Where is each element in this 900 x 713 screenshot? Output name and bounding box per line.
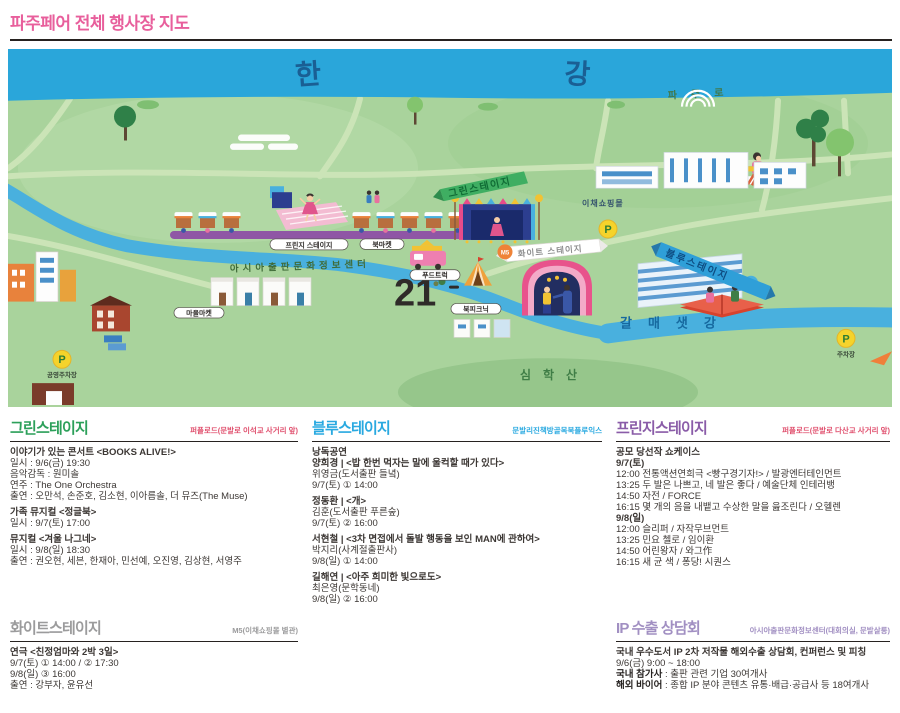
event-line: 9/8(일) ② 16:00 — [312, 594, 602, 605]
event-line: 9/8(일) ① 14:00 — [312, 556, 602, 567]
map-illustration: 한 강 파주로 갈매샛강 심학산 — [8, 49, 892, 407]
food-truck-pill: 푸드트럭 — [410, 270, 460, 280]
page-header: 파주페어 전체 행사장 지도 — [0, 0, 900, 41]
detail-value: : 출판 관련 기업 30여개사 — [662, 669, 767, 680]
event-title: 연극 <친정엄마와 2박 3일> — [10, 647, 298, 658]
svg-text:푸드트럭: 푸드트럭 — [422, 271, 448, 280]
event: 연극 <친정엄마와 2박 3일> 9/7(토) ① 14:00 / ② 17:3… — [10, 647, 298, 691]
section-white-stage: 화이트스테이지 M5(이채쇼핑몰 별관) 연극 <친정엄마와 2박 3일> 9/… — [10, 617, 298, 691]
han-river — [8, 49, 892, 101]
event-title: 가족 뮤지컬 <정글북> — [10, 507, 298, 518]
section-header: 프린지스테이지 퍼플로드(문발로 다산교 사거리 앞) — [616, 417, 890, 442]
event-line: 9/8(일) ③ 16:00 — [10, 669, 298, 680]
section-location: M5(이채쇼핑몰 별관) — [232, 625, 298, 638]
event-line: 국내 우수도서 IP 2차 저작물 해외수출 상담회, 컨퍼런스 및 피칭 — [616, 647, 890, 658]
corner-building — [32, 383, 74, 405]
schedule-item: 16:15 새 균 색 / 퐁당! 시퀀스 — [616, 557, 890, 568]
event-line: 9/6(금) 9:00 ~ 18:00 — [616, 658, 890, 669]
section-location: 문발리진책방골목북플루익스 — [512, 425, 602, 438]
event-line: 국내 참가사 : 출판 관련 기업 30여개사 — [616, 669, 890, 680]
svg-text:M5: M5 — [501, 250, 510, 256]
village-market-pill: 마을마켓 — [174, 308, 224, 318]
book-picnic-pill: 북피크닉 — [451, 304, 501, 314]
section-location: 퍼플로드(문발로 다산교 사거리 앞) — [782, 425, 890, 438]
svg-text:마을마켓: 마을마켓 — [186, 309, 212, 318]
svg-text:P: P — [58, 354, 65, 366]
parking-icon-left: P — [53, 350, 71, 368]
page-title: 파주페어 전체 행사장 지도 — [10, 9, 892, 34]
poster-page: 파주페어 전체 행사장 지도 한 강 파주 — [0, 0, 900, 713]
parking-label-right: 주차장 — [837, 349, 855, 358]
fringe-stage-pill: 프린지 스테이지 — [270, 239, 348, 250]
venue-map: 한 강 파주로 갈매샛강 심학산 — [8, 49, 892, 407]
theater-illustration — [522, 260, 592, 316]
event-line: 최은영(문학동네) — [312, 583, 602, 594]
event-line: 9/7(토) ② 16:00 — [312, 518, 602, 529]
section-location: 아시아출판문화정보센터(대회의실, 문발살롱) — [750, 625, 890, 638]
event-title: 이야기가 있는 콘서트 <BOOKS ALIVE!> — [10, 447, 298, 458]
svg-text:P: P — [842, 333, 849, 345]
section-ip-export: IP 수출 상담회 아시아출판문화정보센터(대회의실, 문발살롱) 국내 우수도… — [616, 617, 890, 691]
section-header: 화이트스테이지 M5(이채쇼핑몰 별관) — [10, 617, 298, 642]
parking-icon-right: P — [837, 329, 855, 347]
parking-icon-center: P — [599, 220, 617, 238]
event: 정동환 | <개> 김훈(도서출판 푸른숲) 9/7(토) ② 16:00 — [312, 496, 602, 529]
svg-text:북마켓: 북마켓 — [372, 240, 392, 249]
event-line: 해외 바이어 : 종합 IP 분야 콘텐츠 유통·배급·공급사 등 18여개사 — [616, 680, 890, 691]
event: 뮤지컬 <겨울 나그네> 일시 : 9/8(일) 18:30 출연 : 권오현,… — [10, 534, 298, 567]
title-rule — [10, 39, 892, 41]
event: 낭독공연 양희경 | <밥 한번 먹자는 말에 울컥할 때가 있다> 위영금(도… — [312, 447, 602, 491]
section-title: 블루스테이지 — [312, 417, 390, 438]
event-line: 위영금(도서출판 들녘) — [312, 469, 602, 480]
schedule-item: 12:00 전통액션연희극 <빵구경기자!> / 발광엔터테인먼트 — [616, 469, 890, 480]
white-stage-badge: M5 — [498, 244, 513, 259]
event-line: 일시 : 9/6(금) 19:30 — [10, 458, 298, 469]
event-title: 정동환 | <개> — [312, 496, 602, 507]
day-label: 9/7(토) — [616, 458, 890, 469]
day-label: 9/8(일) — [616, 513, 890, 524]
event-line: 김훈(도서출판 푸른숲) — [312, 507, 602, 518]
section-title: 프린지스테이지 — [616, 417, 707, 438]
schedule-item: 16:15 몇 개의 음을 내뱉고 수상한 말을 읊조린다 / 오헬렌 — [616, 502, 890, 513]
detail-label: 국내 참가사 — [616, 669, 662, 680]
empty-cell — [312, 617, 602, 691]
event-line: 9/7(토) ① 14:00 — [312, 480, 602, 491]
event: 국내 우수도서 IP 2차 저작물 해외수출 상담회, 컨퍼런스 및 피칭 9/… — [616, 647, 890, 691]
event-line: 박지리(사계절출판사) — [312, 545, 602, 556]
section-header: 그린스테이지 퍼플로드(문발로 이석교 사거리 앞) — [10, 417, 298, 442]
mountain-label: 심학산 — [520, 367, 589, 382]
svg-text:북피크닉: 북피크닉 — [463, 305, 489, 314]
event-title: 양희경 | <밥 한번 먹자는 말에 울컥할 때가 있다> — [312, 458, 602, 469]
shopping-mall-label: 이채쇼핑몰 — [582, 198, 624, 208]
event-line: 일시 : 9/7(토) 17:00 — [10, 518, 298, 529]
svg-text:프린지 스테이지: 프린지 스테이지 — [286, 240, 333, 249]
han-river-label-2: 강 — [564, 58, 592, 90]
book-market-pill: 북마켓 — [360, 239, 404, 249]
svg-text:P: P — [604, 224, 611, 236]
small-buildings — [454, 319, 510, 337]
schedule-item: 13:25 두 발은 나쁘고, 네 발은 좋다 / 예술단체 인테러뱅 — [616, 480, 890, 491]
section-blue-stage: 블루스테이지 문발리진책방골목북플루익스 낭독공연 양희경 | <밥 한번 먹자… — [312, 417, 602, 605]
event: 이야기가 있는 콘서트 <BOOKS ALIVE!> 일시 : 9/6(금) 1… — [10, 447, 298, 502]
event-line: 출연 : 강부자, 윤유선 — [10, 680, 298, 691]
showcase-title: 공모 당선작 쇼케이스 — [616, 447, 890, 458]
event-title: 서현철 | <3차 면접에서 돌발 행동을 보인 MAN에 관하여> — [312, 534, 602, 545]
event-title: 길해연 | <아주 희미한 빛으로도> — [312, 572, 602, 583]
event: 가족 뮤지컬 <정글북> 일시 : 9/7(토) 17:00 — [10, 507, 298, 529]
han-river-label-1: 한 — [294, 58, 322, 91]
event-line: 9/7(토) ① 14:00 / ② 17:30 — [10, 658, 298, 669]
section-title: IP 수출 상담회 — [616, 617, 700, 638]
detail-value: : 종합 IP 분야 콘텐츠 유통·배급·공급사 등 18여개사 — [662, 680, 869, 691]
section-fringe-stage: 프린지스테이지 퍼플로드(문발로 다산교 사거리 앞) 공모 당선작 쇼케이스 … — [616, 417, 890, 605]
stream-label: 갈매샛강 — [620, 315, 732, 330]
purple-road — [170, 231, 473, 239]
event: 길해연 | <아주 희미한 빛으로도> 최은영(문학동네) 9/8(일) ② 1… — [312, 572, 602, 605]
section-title: 그린스테이지 — [10, 417, 88, 438]
event-category: 낭독공연 — [312, 447, 602, 458]
showcase: 공모 당선작 쇼케이스 9/7(토) 12:00 전통액션연희극 <빵구경기자!… — [616, 447, 890, 568]
section-green-stage: 그린스테이지 퍼플로드(문발로 이석교 사거리 앞) 이야기가 있는 콘서트 <… — [10, 417, 298, 605]
section-header: 블루스테이지 문발리진책방골목북플루익스 — [312, 417, 602, 442]
event-line: 연주 : The One Orchestra — [10, 480, 298, 491]
schedule-item: 14:50 자전 / FORCE — [616, 491, 890, 502]
schedule-item: 12:00 슬리퍼 / 자작무브먼트 — [616, 524, 890, 535]
event-line: 출연 : 오만석, 손준호, 김소현, 이아름솔, 더 뮤즈(The Muse) — [10, 491, 298, 502]
detail-label: 해외 바이어 — [616, 680, 662, 691]
section-header: IP 수출 상담회 아시아출판문화정보센터(대회의실, 문발살롱) — [616, 617, 890, 642]
event-line: 음악감독 : 원미솔 — [10, 469, 298, 480]
event-line: 출연 : 권오현, 세븐, 한재아, 민선예, 오진영, 김상현, 서영주 — [10, 556, 298, 567]
event-line: 일시 : 9/8(일) 18:30 — [10, 545, 298, 556]
parking-label-left: 공영주차장 — [47, 370, 77, 379]
program-sections: 그린스테이지 퍼플로드(문발로 이석교 사거리 앞) 이야기가 있는 콘서트 <… — [0, 407, 900, 691]
section-location: 퍼플로드(문발로 이석교 사거리 앞) — [190, 425, 298, 438]
schedule-item: 14:50 어린왕자 / 와그作 — [616, 546, 890, 557]
event: 서현철 | <3차 면접에서 돌발 행동을 보인 MAN에 관하여> 박지리(사… — [312, 534, 602, 567]
event-title: 뮤지컬 <겨울 나그네> — [10, 534, 298, 545]
schedule-item: 13:25 민요 첼로 / 임이환 — [616, 535, 890, 546]
section-title: 화이트스테이지 — [10, 617, 101, 638]
